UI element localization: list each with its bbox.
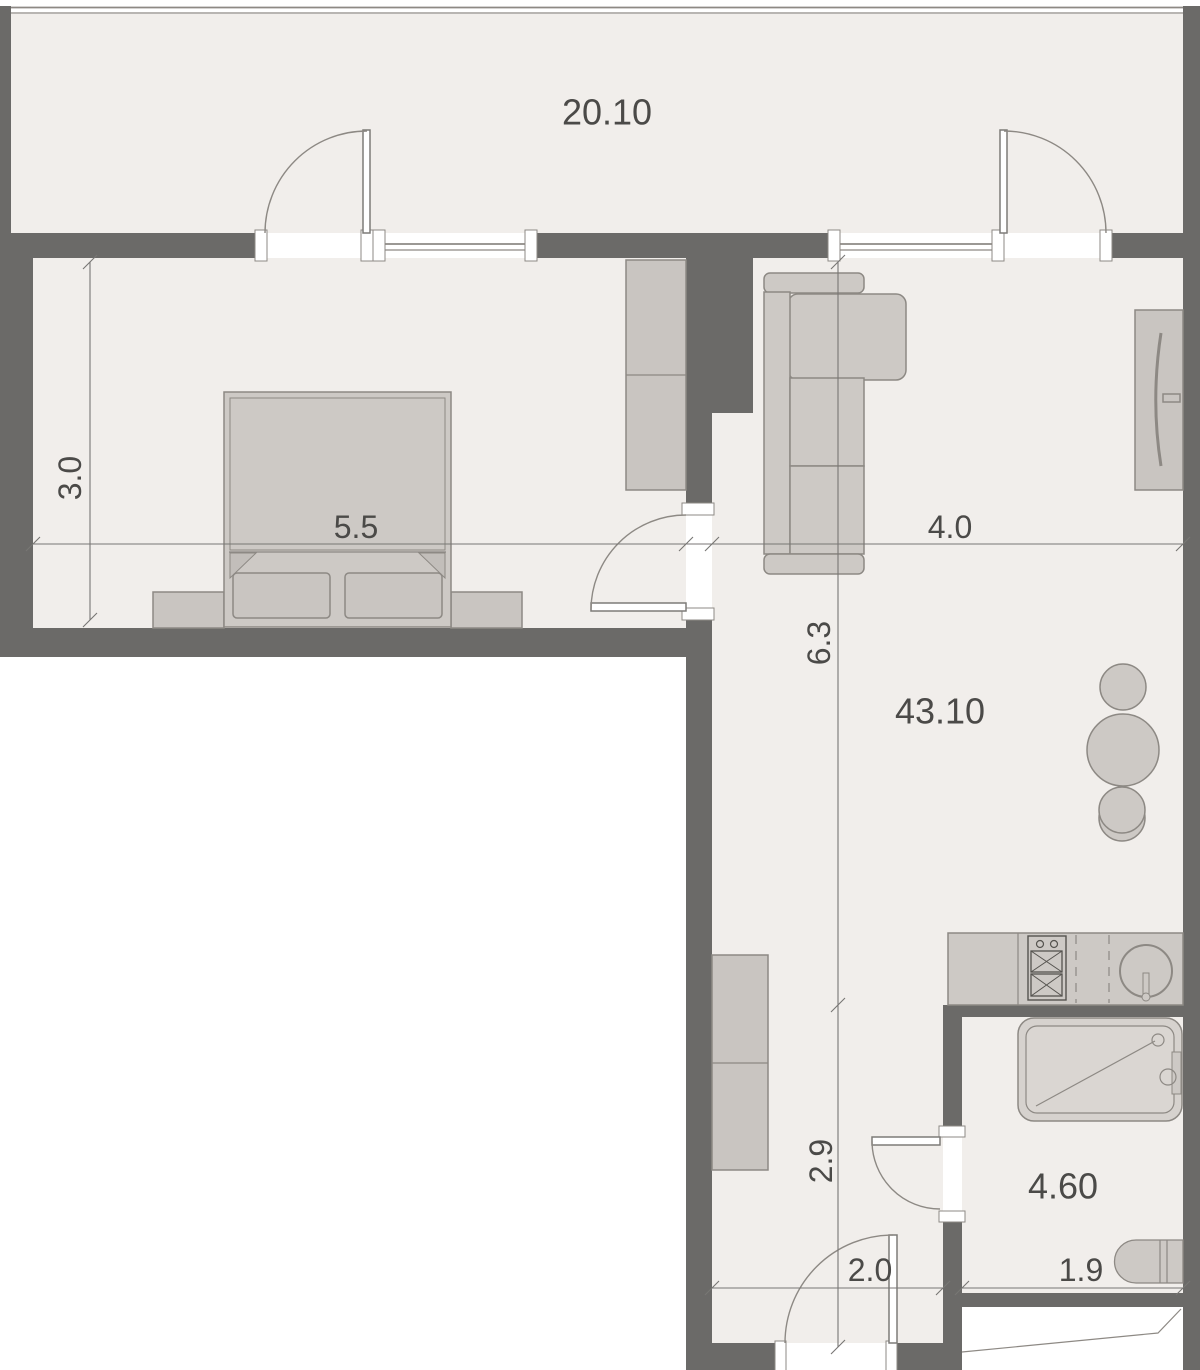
- sink-faucet-base: [1142, 993, 1150, 1001]
- sofa-chaise: [788, 294, 906, 380]
- sofa-backrest: [764, 292, 790, 554]
- tv-mount: [1163, 394, 1180, 402]
- window-jamb: [828, 230, 840, 261]
- recess-area: [962, 1307, 1183, 1370]
- sofa-armrest-bottom: [764, 554, 864, 574]
- floor-plan-drawing: 20.10 43.10 4.60 5.5 4.0 3.0 6.3 2.9 2.0…: [0, 0, 1200, 1370]
- coffee-table-small-bottom: [1099, 787, 1145, 833]
- right-wall: [1183, 6, 1200, 1370]
- left-wall: [0, 233, 33, 657]
- nightstand-left: [153, 592, 224, 628]
- top-wall-middle: [537, 233, 830, 258]
- door-jamb: [682, 608, 714, 620]
- kitchen-bathroom-partition: [943, 1005, 1200, 1017]
- door-jamb: [775, 1341, 786, 1370]
- nightstand-right: [451, 592, 522, 628]
- window-jamb: [373, 230, 385, 261]
- bottom-wall-left-of-entrance: [686, 1343, 783, 1370]
- bottom-wall-right-of-entrance: [890, 1343, 943, 1370]
- door-jamb: [682, 503, 714, 515]
- hallway-furniture: [712, 955, 768, 1170]
- radiator: [1115, 1240, 1184, 1283]
- bedroom-balcony-door-leaf: [363, 130, 370, 233]
- dim-hallway-width: 2.0: [848, 1252, 892, 1288]
- balcony-area-label: 20.10: [562, 92, 652, 133]
- door-jamb: [939, 1211, 965, 1222]
- dim-living-width: 4.0: [928, 509, 972, 545]
- coffee-table-large: [1087, 714, 1159, 786]
- interior-wall-upper: [686, 258, 712, 515]
- interior-wall-lower: [686, 610, 712, 1343]
- door-jamb: [939, 1126, 965, 1137]
- living-area-label: 43.10: [895, 691, 985, 732]
- entrance-recess: [962, 1307, 1183, 1370]
- bathroom-bottom-wall: [943, 1293, 1200, 1307]
- bedroom-bottom-wall: [0, 628, 686, 657]
- dim-bedroom-width: 5.5: [334, 509, 378, 545]
- dim-living-depth: 6.3: [801, 621, 837, 665]
- living-balcony-door-leaf: [1000, 130, 1007, 233]
- bathroom-left-wall-upper: [943, 1005, 962, 1137]
- pillow-right: [345, 573, 442, 618]
- interior-wall-block: [712, 258, 753, 413]
- sofa-armrest-top: [764, 273, 864, 293]
- window-jamb: [992, 230, 1004, 261]
- door-jamb: [255, 230, 267, 261]
- door-jamb: [886, 1341, 897, 1370]
- sofa-seat-2: [790, 466, 864, 554]
- coffee-table-small-top: [1100, 664, 1146, 710]
- door-jamb: [1100, 230, 1112, 261]
- dim-bathroom-width: 1.9: [1059, 1252, 1103, 1288]
- dim-hallway-depth: 2.9: [803, 1139, 839, 1183]
- pillow-left: [233, 573, 330, 618]
- bathtub-faucet: [1172, 1052, 1181, 1094]
- sofa-seat-1: [790, 378, 864, 466]
- door-jamb: [361, 230, 373, 261]
- floor-plan-page: 20.10 43.10 4.60 5.5 4.0 3.0 6.3 2.9 2.0…: [0, 0, 1200, 1370]
- window-jamb: [525, 230, 537, 261]
- dim-bedroom-depth: 3.0: [52, 456, 88, 500]
- bedroom-door-leaf: [591, 603, 686, 611]
- balcony-left-wall: [0, 6, 11, 233]
- bathroom-area-label: 4.60: [1028, 1166, 1098, 1207]
- kitchen: [948, 933, 1183, 1005]
- bathroom-door-leaf: [872, 1137, 940, 1145]
- top-wall-left: [0, 233, 257, 258]
